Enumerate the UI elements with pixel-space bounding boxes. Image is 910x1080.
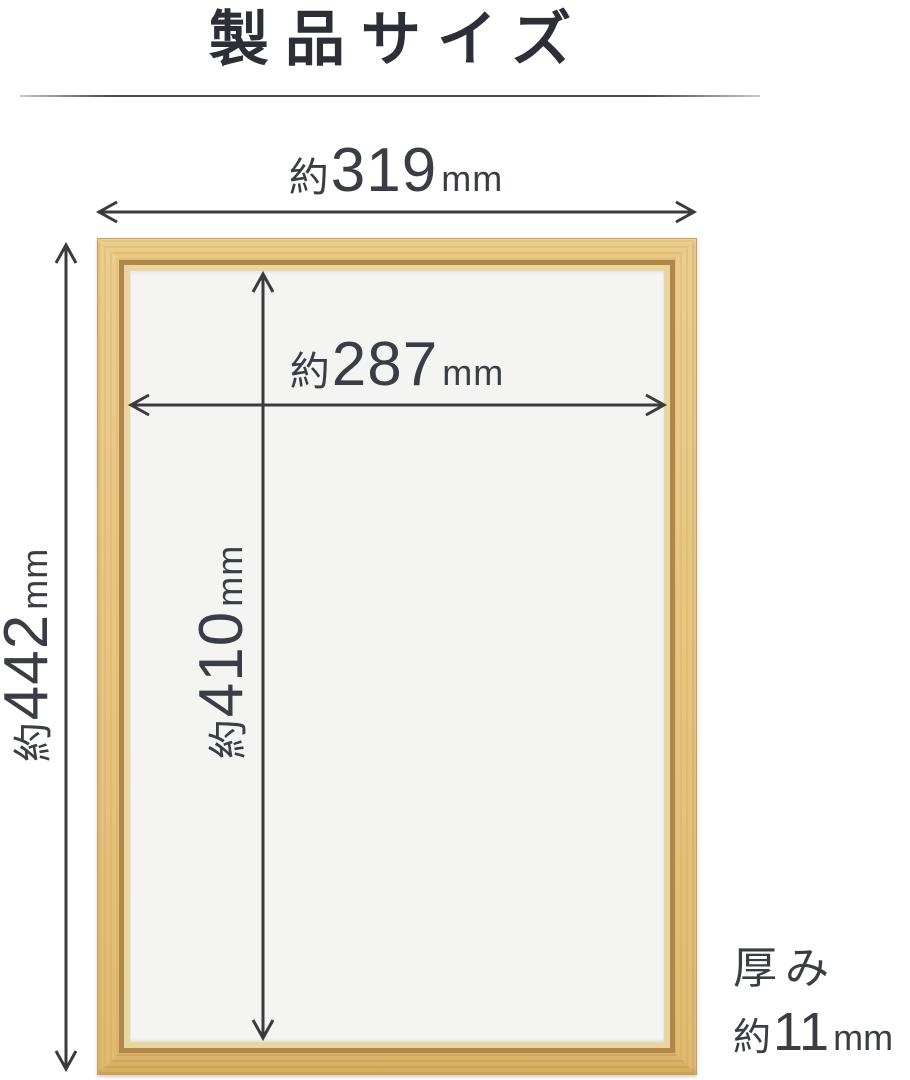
approx-prefix: 約 xyxy=(289,158,329,198)
approx-prefix: 約 xyxy=(209,719,249,759)
thickness-value-row: 約 11 mm xyxy=(733,1005,893,1059)
label-outer-height: 約 442 mm xyxy=(0,548,58,762)
approx-prefix: 約 xyxy=(290,352,330,392)
dimension-unit: mm xyxy=(17,548,53,610)
dimension-unit: mm xyxy=(441,161,503,197)
dimension-unit: mm xyxy=(833,1020,893,1056)
dimension-value: 287 xyxy=(332,334,438,396)
label-outer-width: 約 319 mm xyxy=(289,140,503,202)
label-inner-width: 約 287 mm xyxy=(290,334,504,396)
dimension-value: 410 xyxy=(191,611,253,717)
page-title: 製品サイズ xyxy=(0,0,780,80)
dimension-value: 442 xyxy=(0,614,58,720)
label-inner-height: 約 410 mm xyxy=(191,545,253,759)
title-divider xyxy=(20,95,760,97)
product-size-diagram: 製品サイズ 約 319 xyxy=(0,0,910,1080)
dimension-value: 11 xyxy=(773,1005,829,1059)
dimension-unit: mm xyxy=(442,355,504,391)
dimension-value: 319 xyxy=(331,140,437,202)
approx-prefix: 約 xyxy=(14,722,54,762)
thickness-note: 厚み 約 11 mm xyxy=(733,944,893,1059)
approx-prefix: 約 xyxy=(733,1019,771,1057)
arrow-outer-width xyxy=(99,202,694,222)
dimension-unit: mm xyxy=(212,545,248,607)
thickness-label: 厚み xyxy=(733,944,893,995)
